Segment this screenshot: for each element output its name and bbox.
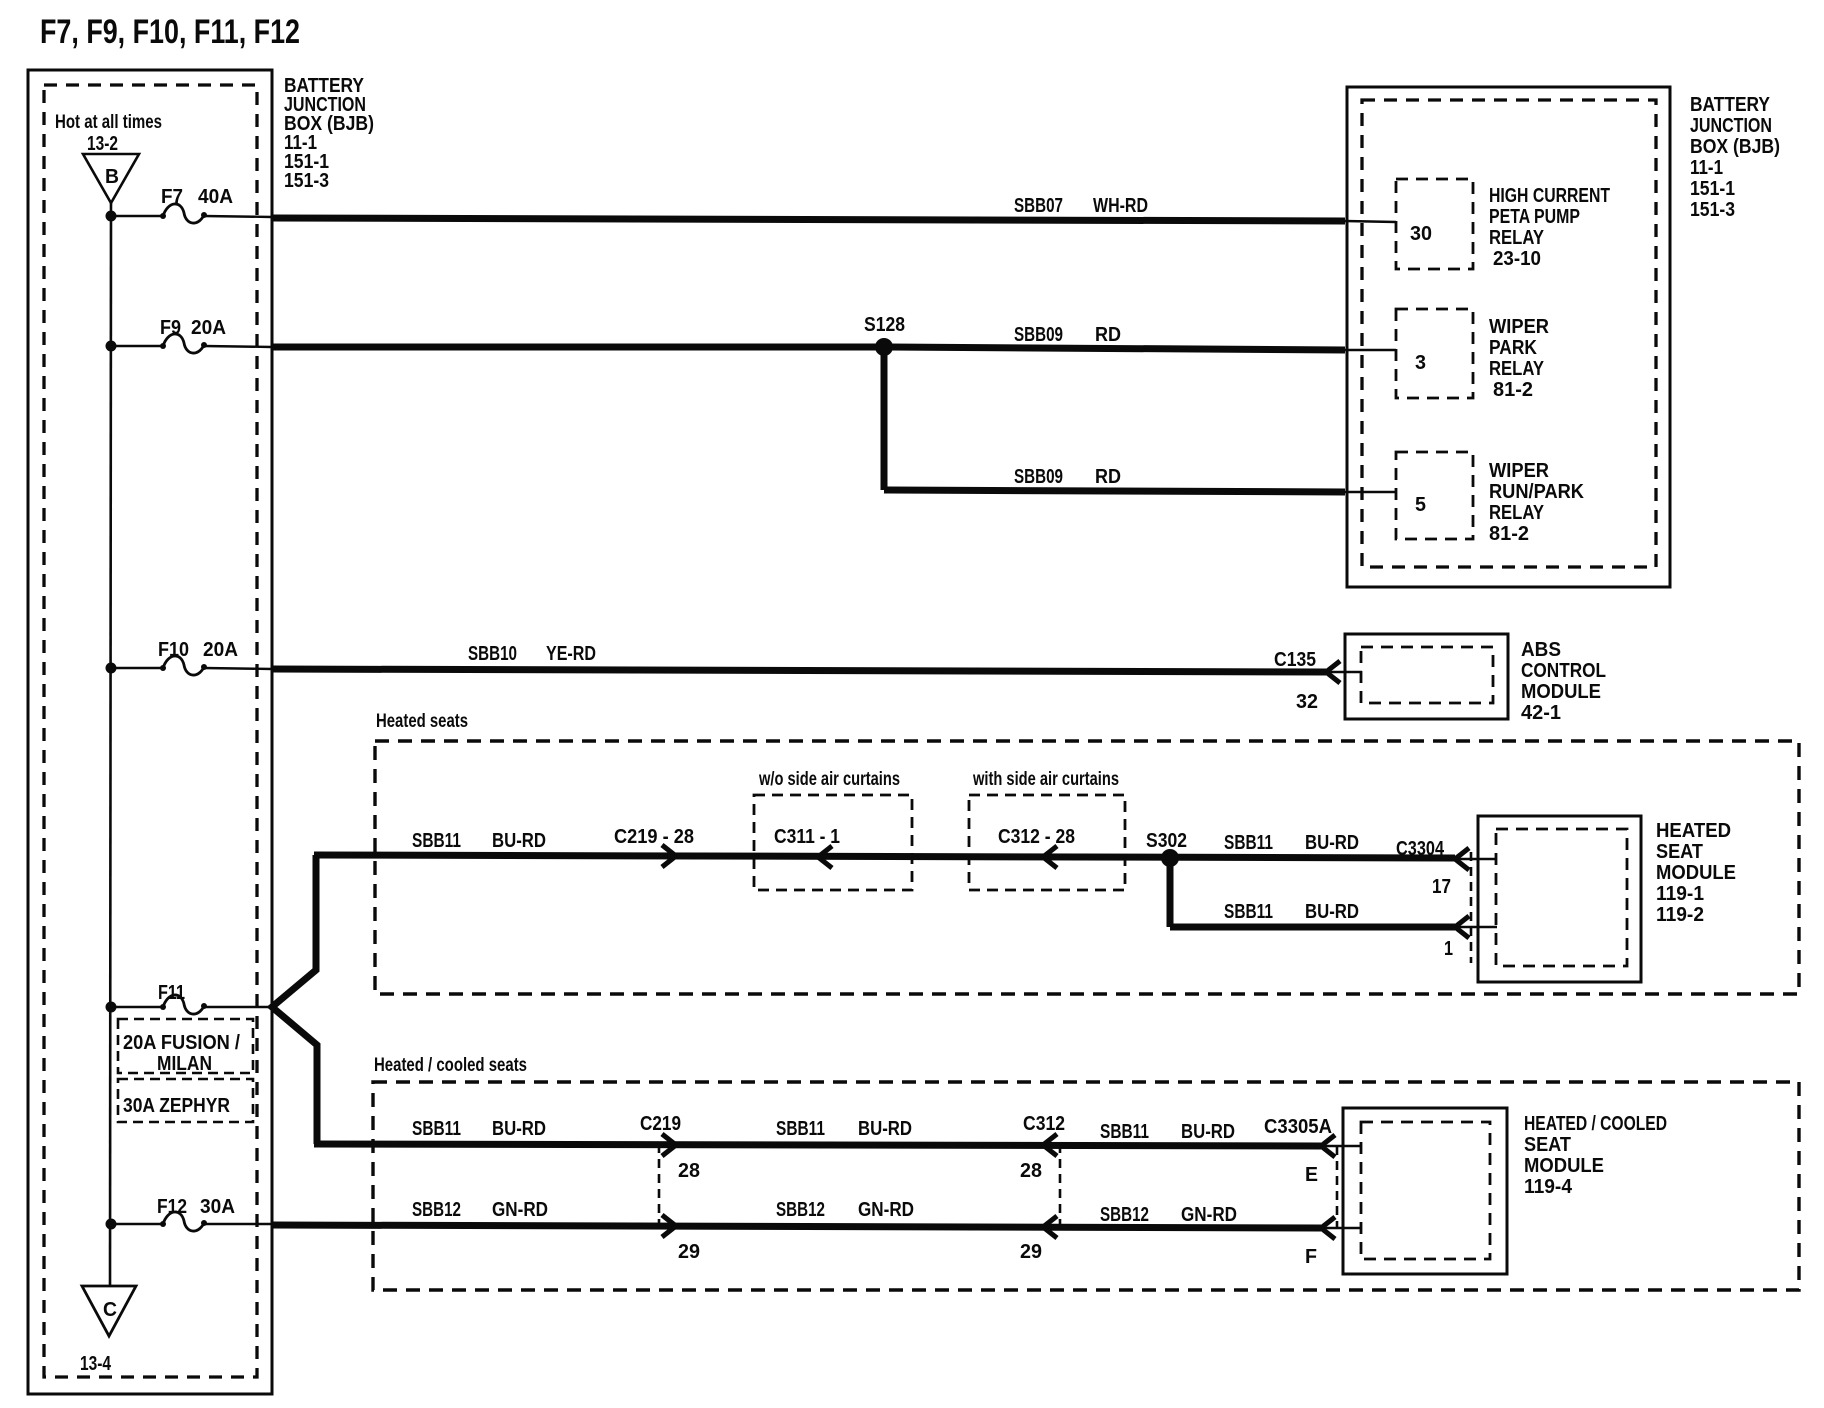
svg-text:w/o side air curtains: w/o side air curtains (758, 769, 900, 790)
svg-text:MODULE: MODULE (1524, 1155, 1604, 1177)
svg-text:SBB12: SBB12 (776, 1199, 825, 1221)
svg-text:SBB10: SBB10 (468, 643, 517, 665)
svg-text:JUNCTION: JUNCTION (1690, 115, 1772, 137)
svg-text:HEATED: HEATED (1656, 820, 1731, 842)
svg-text:1: 1 (1444, 938, 1453, 960)
svg-text:B: B (105, 166, 119, 188)
svg-text:BU-RD: BU-RD (1181, 1121, 1235, 1143)
svg-text:C135: C135 (1274, 649, 1316, 671)
svg-text:30A ZEPHYR: 30A ZEPHYR (123, 1095, 230, 1117)
svg-text:Heated / cooled seats: Heated / cooled seats (374, 1055, 527, 1076)
svg-text:S302: S302 (1146, 830, 1187, 852)
svg-text:RELAY: RELAY (1489, 502, 1545, 524)
svg-text:C312 - 28: C312 - 28 (998, 826, 1075, 848)
svg-text:151-3: 151-3 (284, 170, 329, 192)
svg-text:CONTROL: CONTROL (1521, 660, 1606, 682)
svg-text:HIGH CURRENT: HIGH CURRENT (1489, 185, 1610, 207)
svg-text:SEAT: SEAT (1524, 1134, 1571, 1156)
svg-text:E: E (1305, 1164, 1318, 1186)
svg-text:20A FUSION /: 20A FUSION / (123, 1032, 240, 1054)
svg-text:GN-RD: GN-RD (858, 1199, 914, 1221)
svg-text:30A: 30A (200, 1196, 235, 1218)
svg-text:C312: C312 (1023, 1113, 1065, 1135)
svg-text:WIPER: WIPER (1489, 316, 1550, 338)
svg-text:MODULE: MODULE (1521, 681, 1601, 703)
svg-text:13-4: 13-4 (80, 1353, 112, 1375)
svg-text:BATTERY: BATTERY (1690, 94, 1771, 116)
svg-text:C3305A: C3305A (1264, 1116, 1332, 1138)
svg-text:SBB11: SBB11 (1224, 901, 1273, 923)
svg-text:11-1: 11-1 (1690, 157, 1723, 179)
svg-text:RD: RD (1095, 466, 1121, 488)
svg-text:PETA PUMP: PETA PUMP (1489, 206, 1580, 228)
svg-text:23-10: 23-10 (1493, 248, 1541, 270)
svg-text:MILAN: MILAN (157, 1053, 212, 1075)
svg-text:42-1: 42-1 (1521, 702, 1561, 724)
svg-text:81-2: 81-2 (1493, 379, 1533, 401)
svg-text:BOX (BJB): BOX (BJB) (1690, 136, 1780, 158)
svg-text:F: F (1305, 1246, 1317, 1268)
svg-text:29: 29 (678, 1241, 700, 1263)
svg-text:GN-RD: GN-RD (492, 1199, 548, 1221)
svg-text:Hot at all times: Hot at all times (55, 112, 162, 133)
svg-text:28: 28 (1020, 1160, 1042, 1182)
svg-text:3: 3 (1415, 352, 1426, 374)
svg-text:SBB09: SBB09 (1014, 466, 1063, 488)
svg-text:BU-RD: BU-RD (1305, 832, 1359, 854)
svg-text:29: 29 (1020, 1241, 1042, 1263)
svg-text:151-3: 151-3 (1690, 199, 1735, 221)
svg-text:SBB11: SBB11 (412, 830, 461, 852)
svg-text:S128: S128 (864, 314, 905, 336)
svg-text:with side air curtains: with side air curtains (972, 769, 1119, 790)
svg-text:SBB07: SBB07 (1014, 195, 1063, 217)
svg-text:GN-RD: GN-RD (1181, 1204, 1237, 1226)
svg-text:RD: RD (1095, 324, 1121, 346)
svg-text:C3304: C3304 (1396, 838, 1445, 860)
svg-text:YE-RD: YE-RD (546, 643, 596, 665)
svg-text:HEATED / COOLED: HEATED / COOLED (1524, 1113, 1667, 1135)
svg-text:BU-RD: BU-RD (858, 1118, 912, 1140)
svg-text:30: 30 (1410, 223, 1432, 245)
svg-text:SBB11: SBB11 (412, 1118, 461, 1140)
svg-text:81-2: 81-2 (1489, 523, 1529, 545)
svg-text:SBB11: SBB11 (1100, 1121, 1149, 1143)
svg-text:BU-RD: BU-RD (492, 830, 546, 852)
svg-text:Heated seats: Heated seats (376, 711, 468, 732)
svg-text:119-2: 119-2 (1656, 904, 1704, 926)
svg-text:BU-RD: BU-RD (1305, 901, 1359, 923)
svg-text:SBB12: SBB12 (1100, 1204, 1149, 1226)
svg-text:WIPER: WIPER (1489, 460, 1550, 482)
svg-text:20A: 20A (203, 639, 238, 661)
svg-text:WH-RD: WH-RD (1093, 195, 1148, 217)
svg-text:RUN/PARK: RUN/PARK (1489, 481, 1585, 503)
svg-text:SBB11: SBB11 (776, 1118, 825, 1140)
svg-text:F10: F10 (158, 639, 189, 661)
svg-text:RELAY: RELAY (1489, 358, 1545, 380)
svg-text:32: 32 (1296, 691, 1318, 713)
svg-text:F11: F11 (158, 982, 185, 1004)
svg-text:F7, F9, F10, F11, F12: F7, F9, F10, F11, F12 (40, 13, 300, 51)
svg-text:C219: C219 (640, 1113, 681, 1135)
svg-text:5: 5 (1415, 494, 1426, 516)
svg-text:PARK: PARK (1489, 337, 1537, 359)
svg-text:40A: 40A (198, 186, 233, 208)
svg-text:20A: 20A (191, 317, 226, 339)
svg-text:C: C (103, 1299, 117, 1321)
svg-text:SBB11: SBB11 (1224, 832, 1273, 854)
svg-text:C219 - 28: C219 - 28 (614, 826, 694, 848)
svg-text:151-1: 151-1 (1690, 178, 1735, 200)
svg-text:BU-RD: BU-RD (492, 1118, 546, 1140)
svg-text:119-4: 119-4 (1524, 1176, 1573, 1198)
svg-text:MODULE: MODULE (1656, 862, 1736, 884)
svg-text:SBB12: SBB12 (412, 1199, 461, 1221)
svg-text:13-2: 13-2 (87, 133, 118, 155)
svg-text:SBB09: SBB09 (1014, 324, 1063, 346)
svg-text:SEAT: SEAT (1656, 841, 1703, 863)
svg-text:119-1: 119-1 (1656, 883, 1704, 905)
svg-text:RELAY: RELAY (1489, 227, 1545, 249)
svg-text:ABS: ABS (1521, 639, 1561, 661)
svg-text:17: 17 (1432, 876, 1451, 898)
svg-text:28: 28 (678, 1160, 700, 1182)
